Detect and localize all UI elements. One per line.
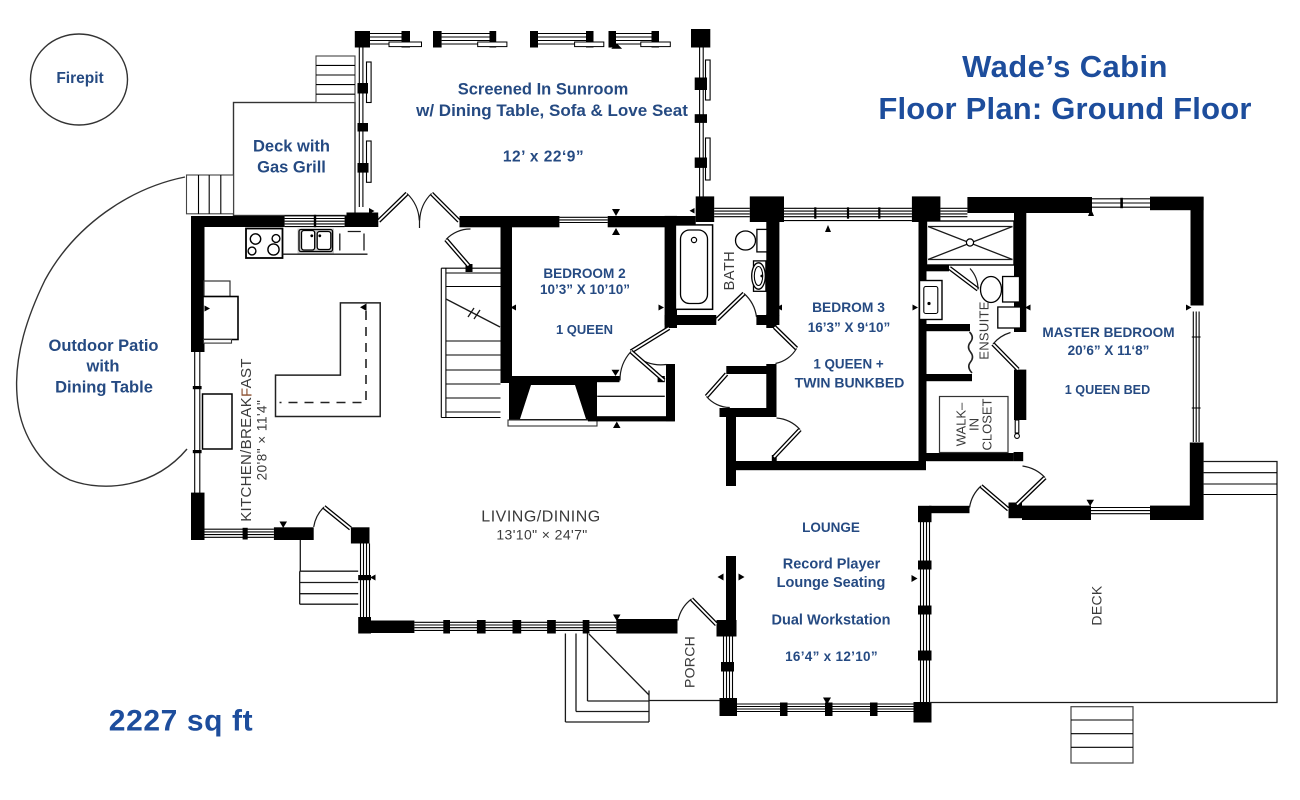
svg-text:BATH: BATH [722, 251, 738, 291]
svg-text:20'8" × 11'4": 20'8" × 11'4" [255, 400, 270, 481]
svg-text:Screened In Sunroom: Screened In Sunroom [458, 81, 629, 99]
svg-text:1 QUEEN +: 1 QUEEN + [813, 357, 884, 372]
svg-text:Dining Table: Dining Table [55, 379, 153, 397]
svg-text:Deck with: Deck with [253, 138, 330, 156]
svg-text:MASTER BEDROOM: MASTER BEDROOM [1042, 325, 1174, 340]
svg-text:1 QUEEN BED: 1 QUEEN BED [1065, 383, 1150, 397]
svg-text:DECK: DECK [1089, 585, 1105, 625]
svg-text:Record Player: Record Player [783, 557, 881, 573]
svg-text:Dual Workstation: Dual Workstation [772, 613, 891, 629]
svg-text:PORCH: PORCH [682, 636, 698, 688]
svg-text:Gas Grill: Gas Grill [257, 159, 326, 177]
svg-text:Lounge Seating: Lounge Seating [777, 575, 886, 591]
svg-text:16’3” X 9‘10”: 16’3” X 9‘10” [808, 320, 891, 335]
svg-text:KITCHEN/BREAKFAST: KITCHEN/BREAKFAST [238, 358, 255, 521]
svg-text:LIVING/DINING: LIVING/DINING [481, 509, 600, 526]
svg-text:Floor Plan: Ground Floor: Floor Plan: Ground Floor [878, 91, 1251, 126]
svg-text:16’4” x 12’10”: 16’4” x 12’10” [785, 649, 878, 664]
svg-text:w/ Dining Table, Sofa & Love S: w/ Dining Table, Sofa & Love Seat [415, 101, 688, 120]
svg-text:2227 sq ft: 2227 sq ft [109, 705, 253, 738]
svg-text:TWIN BUNKBED: TWIN BUNKBED [795, 375, 905, 391]
svg-text:BEDROOM 2: BEDROOM 2 [543, 266, 626, 281]
svg-text:Outdoor Patio: Outdoor Patio [49, 337, 159, 355]
svg-text:ENSUITE: ENSUITE [977, 301, 992, 359]
svg-text:10’3” X 10’10”: 10’3” X 10’10” [540, 282, 630, 297]
svg-text:with: with [86, 358, 120, 376]
svg-text:CLOSET: CLOSET [980, 398, 995, 450]
svg-text:20’6” X 11‘8”: 20’6” X 11‘8” [1068, 343, 1150, 358]
svg-text:13'10" × 24'7": 13'10" × 24'7" [496, 527, 587, 543]
svg-text:Firepit: Firepit [56, 70, 103, 87]
svg-text:12’ x 22‘9”: 12’ x 22‘9” [503, 149, 584, 166]
svg-text:1 QUEEN: 1 QUEEN [556, 322, 613, 337]
svg-text:LOUNGE: LOUNGE [802, 520, 860, 535]
svg-text:BEDROM 3: BEDROM 3 [812, 300, 885, 315]
svg-text:Wade’s Cabin: Wade’s Cabin [962, 49, 1168, 84]
